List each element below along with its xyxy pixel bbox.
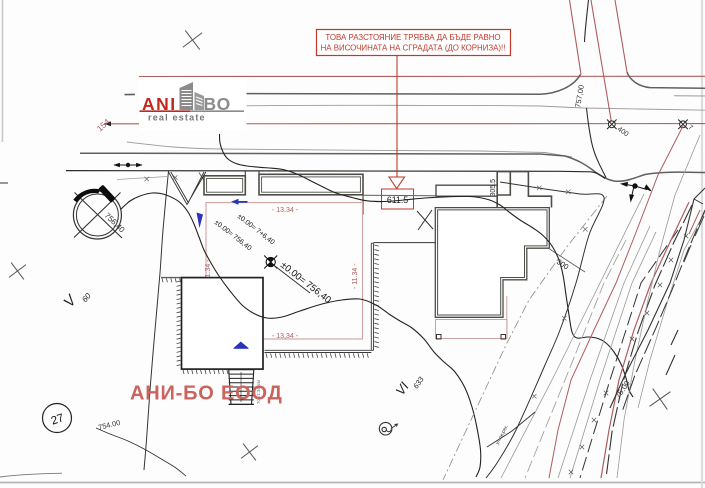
svg-text:V: V bbox=[60, 291, 81, 311]
svg-text:305.5: 305.5 bbox=[490, 179, 497, 197]
svg-text:633: 633 bbox=[411, 374, 426, 390]
svg-text:- 13,34 -: - 13,34 - bbox=[272, 333, 299, 340]
svg-text:±0.00= 756,40: ±0.00= 756,40 bbox=[278, 260, 333, 306]
svg-text:- 13.34 -: - 13.34 - bbox=[272, 207, 299, 214]
svg-text:757,00: 757,00 bbox=[573, 84, 586, 108]
svg-text:ТОВА РАЗСТОЯНИЕ ТРЯБВА ДА БЪДЕ: ТОВА РАЗСТОЯНИЕ ТРЯБВА ДА БЪДЕ РАВНО bbox=[325, 33, 500, 42]
svg-text:АНИ-БО ЕООД: АНИ-БО ЕООД bbox=[130, 383, 283, 405]
svg-text:VI: VI bbox=[392, 379, 412, 398]
svg-text:НА ВИСОЧИНАТА НА СГРАДАТА (ДО: НА ВИСОЧИНАТА НА СГРАДАТА (ДО КОРНИЗА)!! bbox=[321, 44, 506, 53]
svg-text:154: 154 bbox=[95, 116, 112, 133]
svg-text:- 11.34 -: - 11.34 - bbox=[352, 263, 359, 289]
svg-text:754.00: 754.00 bbox=[97, 418, 121, 432]
svg-text:300: 300 bbox=[555, 257, 570, 271]
svg-text:7: 7 bbox=[687, 124, 694, 132]
svg-text:400: 400 bbox=[616, 126, 630, 138]
svg-text:27: 27 bbox=[50, 412, 66, 427]
svg-text:60: 60 bbox=[80, 291, 93, 304]
svg-text:real estate: real estate bbox=[148, 113, 206, 123]
svg-text:ул.ок.рег.: ул.ок.рег. bbox=[494, 424, 509, 446]
